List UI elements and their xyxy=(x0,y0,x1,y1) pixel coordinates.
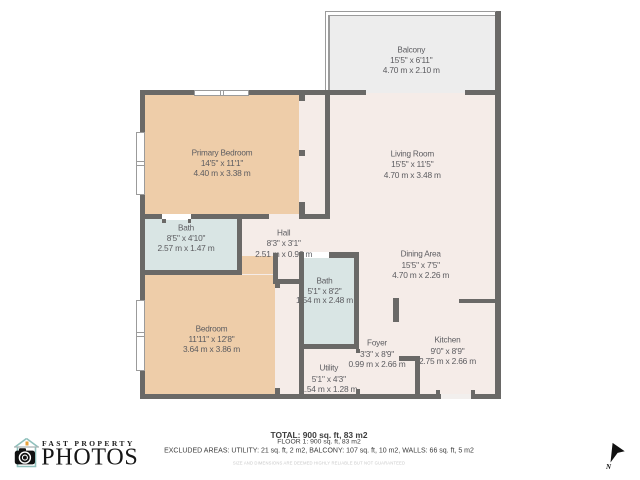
svg-text:N: N xyxy=(605,463,612,471)
svg-text:PHOTOS: PHOTOS xyxy=(41,445,138,471)
